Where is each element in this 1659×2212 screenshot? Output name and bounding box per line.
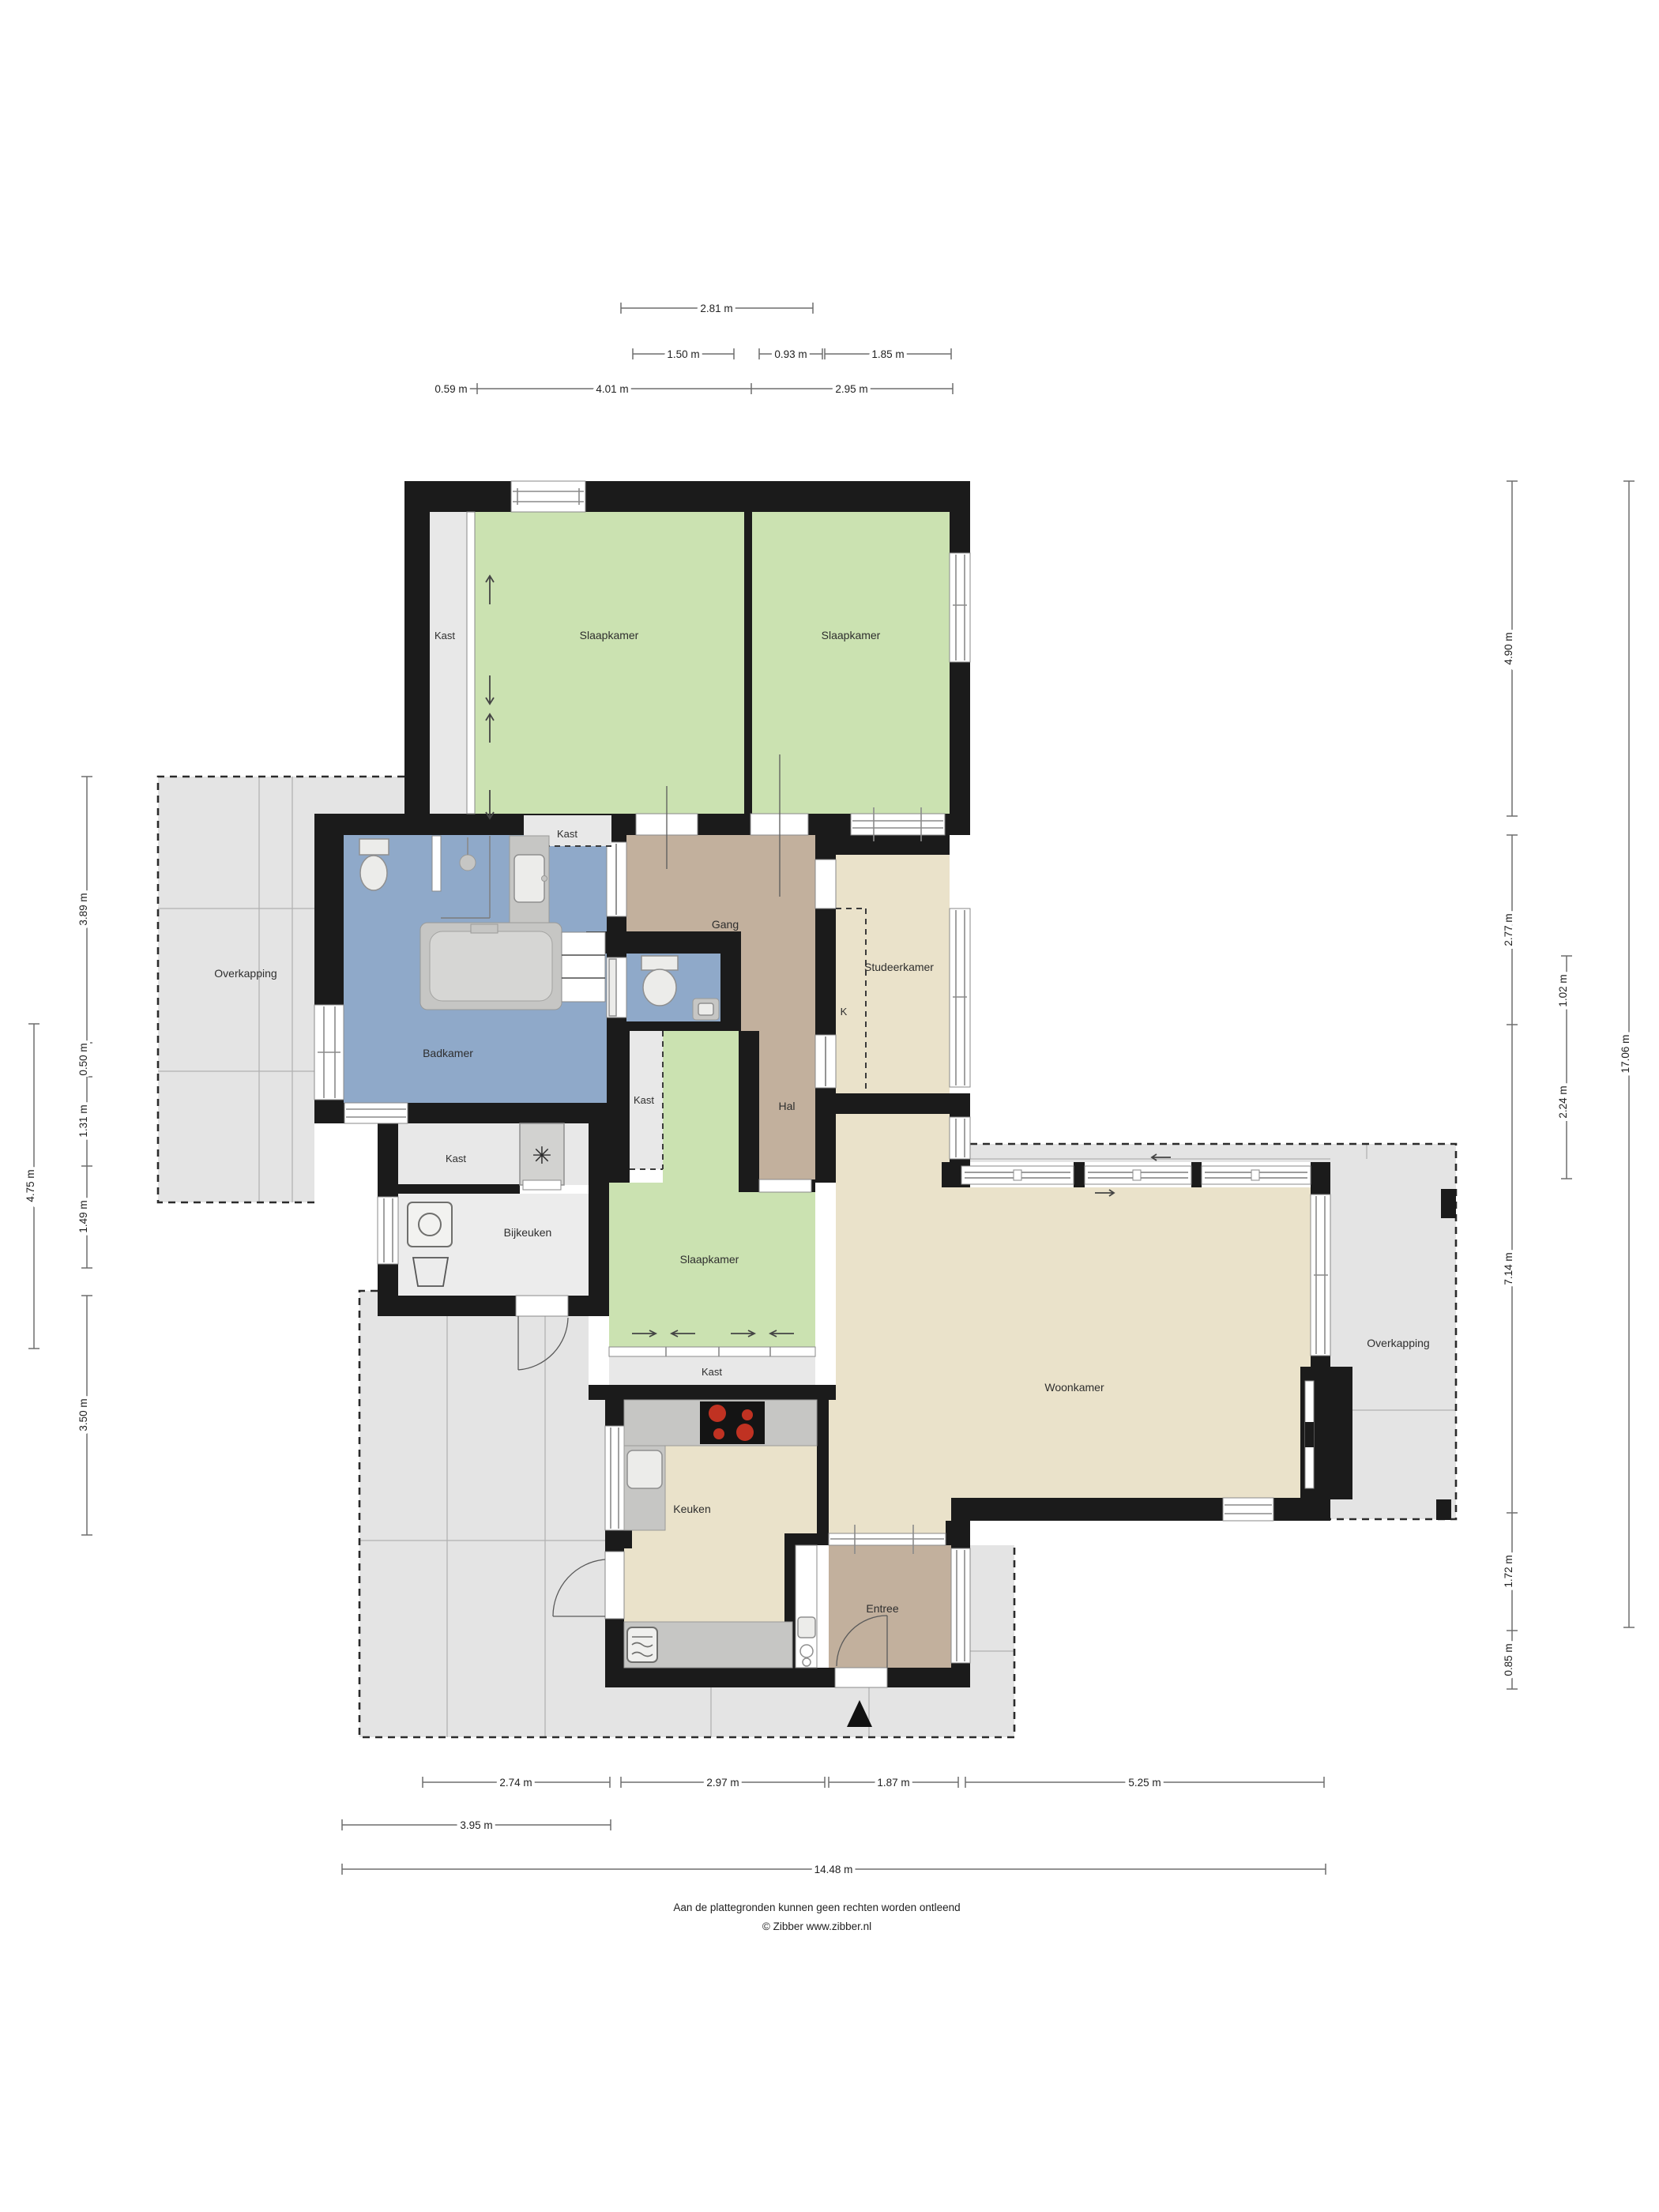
gang-label: Gang	[712, 918, 739, 931]
dim-label-4-90: 4.90 m	[1503, 632, 1514, 664]
window-entree-right	[951, 1548, 970, 1663]
burner-1	[709, 1405, 726, 1422]
kast-bedroom-sliding-rail	[467, 512, 475, 814]
dim-label-2-24: 2.24 m	[1557, 1085, 1569, 1118]
sink-basin-badkamer	[514, 855, 544, 902]
studeerkamer-floor	[836, 855, 950, 1093]
toilet-bowl-badkamer	[360, 856, 387, 890]
dim-label-1-50: 1.50 m	[667, 348, 699, 360]
burner-3	[713, 1428, 724, 1439]
washing-machine-icon	[408, 1202, 452, 1247]
window-woonkamer-right	[1311, 1194, 1330, 1356]
dim-label-2-81: 2.81 m	[700, 303, 732, 314]
burner-4	[736, 1424, 754, 1441]
entree-label: Entree	[866, 1602, 898, 1615]
dim-label-2-97: 2.97 m	[706, 1777, 739, 1789]
slaapkamer2-label: Slaapkamer	[822, 629, 881, 641]
kast-bedroom-floor	[430, 512, 467, 814]
dim-label-0-93: 0.93 m	[774, 348, 807, 360]
dim-label-0-50: 0.50 m	[77, 1043, 89, 1075]
dim-label-17-06: 17.06 m	[1619, 1035, 1631, 1074]
dim-label-0-85: 0.85 m	[1503, 1643, 1514, 1676]
studeerkamer-label: Studeerkamer	[864, 961, 934, 973]
window-studeerkamer-right	[950, 908, 970, 1087]
fireplace	[1300, 1367, 1352, 1499]
bijkeuken-label: Bijkeuken	[504, 1226, 552, 1239]
floorplan-svg: Overkapping Overkapping	[0, 0, 1659, 2212]
kast-sliding-rail	[609, 1347, 815, 1356]
dim-label-1-49: 1.49 m	[77, 1200, 89, 1232]
window-bijkeuken-left	[378, 1197, 398, 1264]
door-hal-slaapkamer3	[759, 1179, 811, 1192]
shower-head-icon	[460, 855, 476, 871]
overkapping-pillar-bottom	[1436, 1499, 1451, 1520]
overkapping-pillar-top	[1441, 1189, 1456, 1218]
window-nook-right	[950, 1117, 970, 1159]
door-keuken-terras	[605, 1552, 624, 1619]
dim-label-2-74: 2.74 m	[499, 1777, 532, 1789]
bathtub-faucet	[471, 924, 498, 933]
slaapkamer2-floor	[752, 512, 950, 814]
dim-label-5-25: 5.25 m	[1128, 1777, 1161, 1789]
overkapping-left-label: Overkapping	[214, 967, 276, 980]
window-badkamer-bottom	[344, 1103, 408, 1123]
footer-disclaimer: Aan de plattegronden kunnen geen rechten…	[673, 1902, 960, 1913]
door-bijkeuken	[516, 1296, 568, 1316]
dim-label-1-85: 1.85 m	[871, 348, 904, 360]
kast-hal-label: Kast	[634, 1094, 654, 1106]
dim-label-1-87: 1.87 m	[877, 1777, 909, 1789]
k-closet-label: K	[841, 1006, 848, 1018]
kast-top-label: Kast	[557, 828, 577, 840]
dim-label-1-31: 1.31 m	[77, 1104, 89, 1137]
dim-label-3-50: 3.50 m	[77, 1398, 89, 1431]
dim-label-0-59: 0.59 m	[434, 383, 467, 395]
window-woonkamer-bottom	[1223, 1498, 1273, 1521]
floorplan-page: Overkapping Overkapping	[0, 0, 1659, 2212]
window-slaapkamer1-top	[511, 481, 585, 512]
sink-faucet-badkamer	[542, 876, 547, 882]
dim-label-2-77: 2.77 m	[1503, 913, 1514, 946]
ventilation-fan-icon: ✳	[532, 1143, 551, 1169]
keuken-label: Keuken	[673, 1503, 710, 1515]
toilet-bowl-wc	[643, 969, 676, 1006]
kast-sliding-label: Kast	[702, 1366, 722, 1378]
slaapkamer1-label: Slaapkamer	[580, 629, 639, 641]
window-badkamer-left	[314, 1005, 344, 1100]
footer: Aan de plattegronden kunnen geen rechten…	[673, 1902, 960, 1932]
boiler-icon-1	[798, 1617, 815, 1638]
dim-label-2-95: 2.95 m	[835, 383, 867, 395]
dim-label-7-14: 7.14 m	[1503, 1252, 1514, 1285]
window-slaapkamer2-right	[950, 553, 970, 662]
dim-label-1-72: 1.72 m	[1503, 1555, 1514, 1587]
dim-label-14-48: 14.48 m	[814, 1864, 853, 1875]
footer-copyright: © Zibber www.zibber.nl	[762, 1920, 871, 1932]
dim-label-1-02: 1.02 m	[1557, 974, 1569, 1006]
dim-label-4-01: 4.01 m	[596, 383, 628, 395]
window-keuken-left	[605, 1426, 624, 1530]
slaapkamer3-label: Slaapkamer	[680, 1253, 739, 1266]
toilet-tank-wc	[641, 956, 678, 970]
fireplace-insert	[1305, 1422, 1314, 1447]
door-toilet-leaf	[609, 959, 616, 1016]
bathtub-inner	[430, 931, 552, 1001]
shelf-niche	[562, 932, 605, 1002]
kitchen-sink	[627, 1450, 662, 1488]
stove-icon	[700, 1401, 765, 1444]
shower-wall-stub	[432, 836, 441, 891]
slaapkamer1-floor	[475, 512, 744, 814]
sink-wc-basin	[698, 1003, 713, 1015]
toilet-tank-badkamer	[359, 839, 389, 855]
overkapping-right-label: Overkapping	[1367, 1337, 1429, 1349]
dim-label-3-89: 3.89 m	[77, 893, 89, 925]
burner-2	[742, 1409, 753, 1420]
dim-label-4-75: 4.75 m	[24, 1169, 36, 1202]
hal-label: Hal	[778, 1100, 795, 1112]
dim-label-3-95: 3.95 m	[460, 1819, 492, 1831]
woonkamer-label: Woonkamer	[1044, 1381, 1104, 1394]
badkamer-label: Badkamer	[423, 1047, 473, 1059]
kast-bedroom-label: Kast	[434, 630, 455, 641]
fan-closet-vent	[523, 1180, 561, 1190]
kast-utility-label: Kast	[446, 1153, 466, 1164]
door-studeerkamer	[815, 860, 836, 908]
door-entree-front	[835, 1668, 887, 1687]
utility-niche	[796, 1545, 817, 1668]
